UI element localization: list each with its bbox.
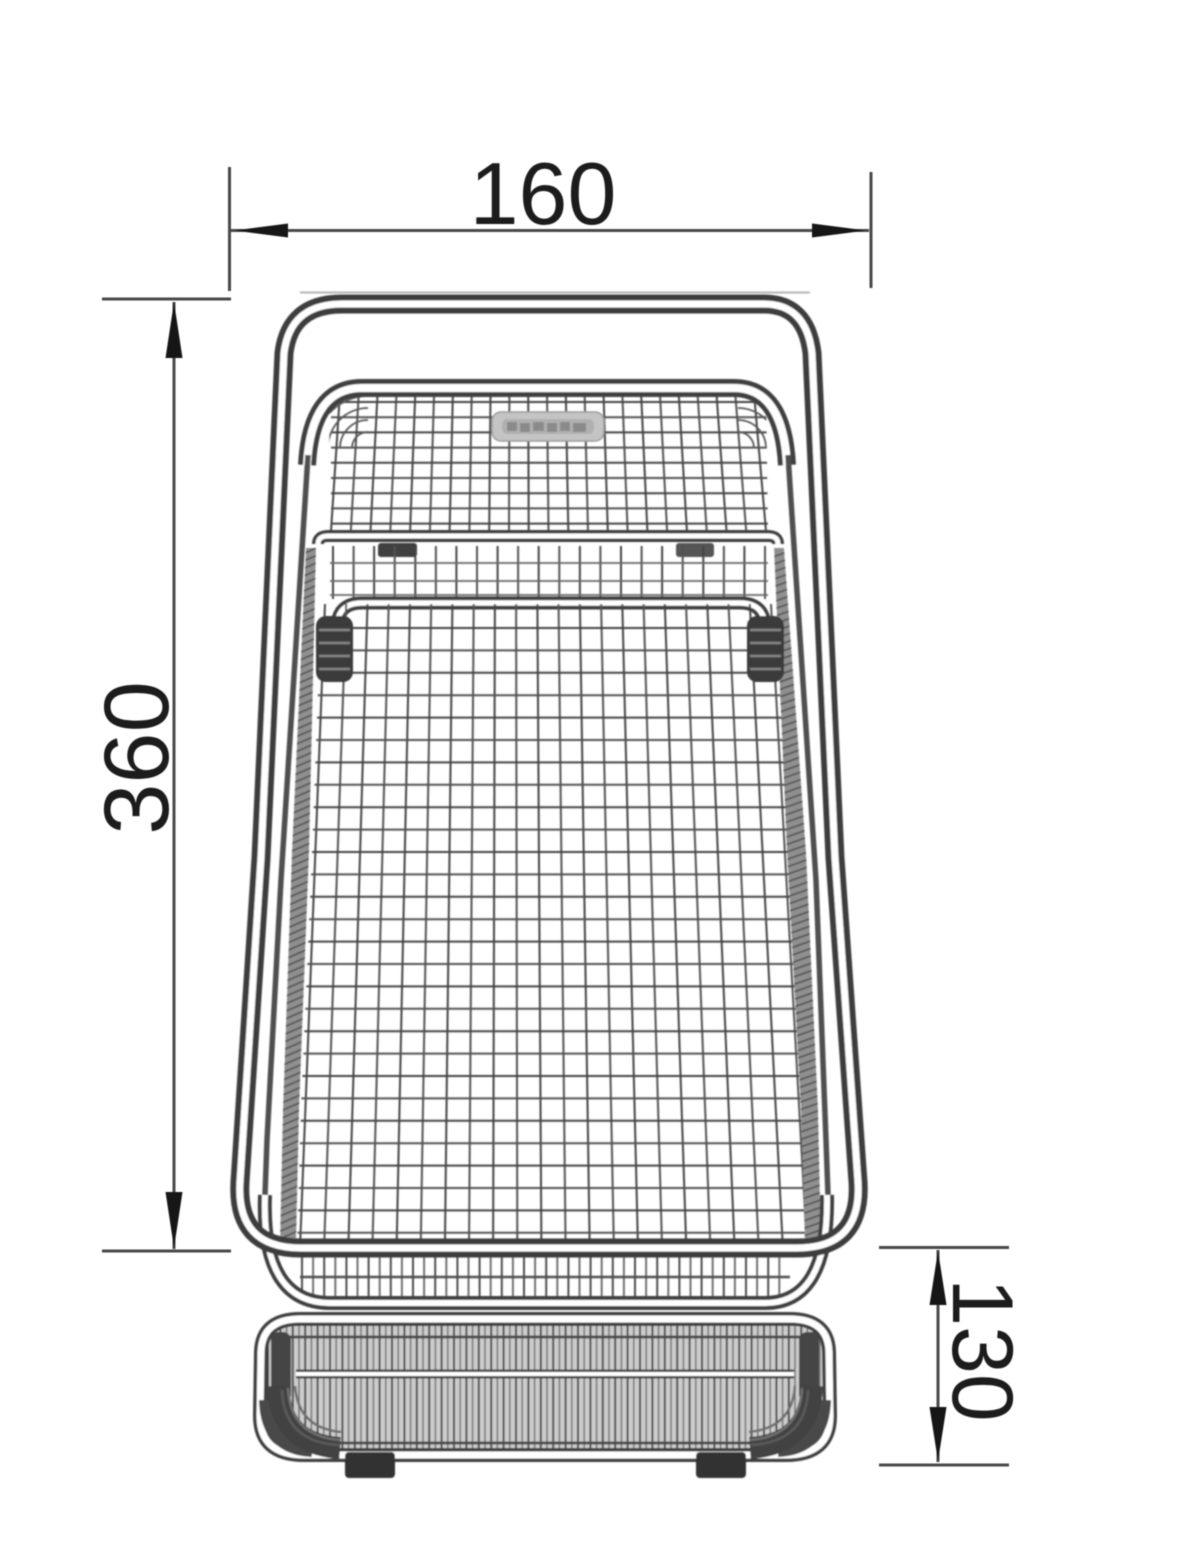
svg-text:160: 160 (470, 144, 617, 243)
svg-text:360: 360 (86, 681, 188, 835)
svg-text:130: 130 (934, 1278, 1030, 1422)
